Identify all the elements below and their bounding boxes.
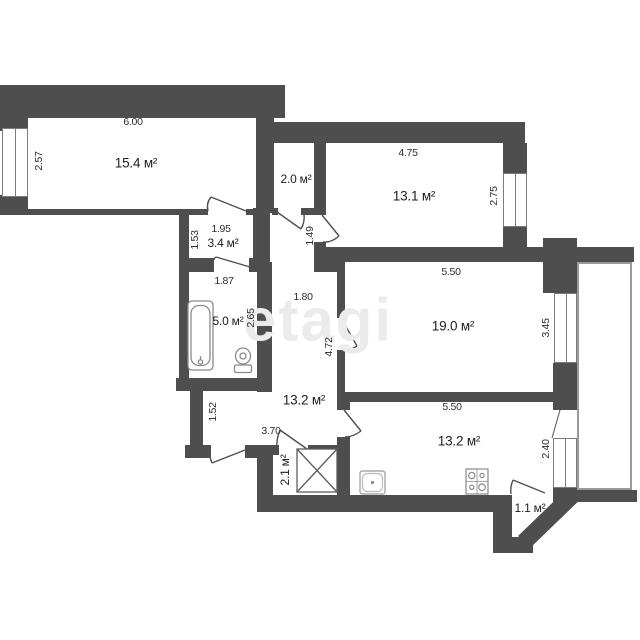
wall-reveal-line xyxy=(552,410,560,438)
wall xyxy=(0,85,285,118)
wall xyxy=(314,247,634,262)
sink-icon xyxy=(360,471,385,494)
wall xyxy=(503,226,527,248)
loggia-outline xyxy=(577,262,632,490)
wall xyxy=(553,363,577,410)
dim-label: 1.95 xyxy=(211,223,230,235)
wall xyxy=(274,122,525,143)
wall xyxy=(543,238,577,293)
wall xyxy=(185,445,211,458)
dim-label: 5.50 xyxy=(442,401,461,413)
room-label-bigroom: 19.0 м² xyxy=(432,319,474,334)
room-label-bedroom-right: 13.1 м² xyxy=(393,189,435,204)
wall xyxy=(0,209,208,215)
dim-label: 2.65 xyxy=(245,308,257,327)
wall xyxy=(272,208,278,215)
door-hall-kitchen xyxy=(344,410,361,437)
window-kitchen-right xyxy=(553,438,577,488)
wall xyxy=(337,350,345,392)
wall xyxy=(179,209,189,391)
dim-label: 3.70 xyxy=(261,425,280,437)
wall xyxy=(256,85,274,213)
door-hall-closet xyxy=(277,430,307,449)
window-living-left xyxy=(2,128,28,197)
dim-label: 1.87 xyxy=(214,275,233,287)
bathtub-icon xyxy=(188,301,213,370)
dim-label: 6.00 xyxy=(123,116,142,128)
dim-label: 4.75 xyxy=(398,147,417,159)
room-label-balcony-bottom: 1.1 м² xyxy=(514,501,545,515)
dim-label: 2.40 xyxy=(540,439,552,458)
wall xyxy=(190,391,203,451)
wall xyxy=(176,378,272,391)
wall xyxy=(0,85,28,131)
dim-label: 5.50 xyxy=(441,266,460,278)
wall xyxy=(337,437,350,497)
room-label-living: 15.4 м² xyxy=(115,156,157,171)
door-living-anteroom xyxy=(207,197,246,211)
wall xyxy=(257,452,273,497)
wall xyxy=(301,208,314,215)
door-hall-bedroom-right xyxy=(322,215,339,242)
dim-label: 4.72 xyxy=(323,337,335,356)
wall xyxy=(179,258,214,272)
room-label-anteroom: 3.4 м² xyxy=(207,236,238,250)
room-label-kitchen: 13.2 м² xyxy=(438,434,480,449)
window-bigroom-right xyxy=(554,293,577,363)
room-label-closet: 2.1 м² xyxy=(278,454,292,485)
watermark: etagi xyxy=(243,286,393,355)
dim-label: 1.52 xyxy=(207,402,219,421)
wall xyxy=(314,143,326,215)
door-entrance xyxy=(210,450,245,463)
wall xyxy=(257,495,512,512)
dim-label: 1.80 xyxy=(293,291,312,303)
dim-label: 3.45 xyxy=(540,318,552,337)
wall xyxy=(249,258,258,272)
room-label-bathroom: 5.0 м² xyxy=(212,314,243,328)
door-anteroom-bathroom xyxy=(213,257,250,267)
dim-label: 1.53 xyxy=(189,230,201,249)
room-label-balcony-top: 2.0 м² xyxy=(280,172,311,186)
room-label-hallway: 13.2 м² xyxy=(283,393,325,408)
wardrobe-icon xyxy=(297,449,337,492)
dim-label: 2.57 xyxy=(33,151,45,170)
stove-icon xyxy=(466,469,488,494)
dim-label: 2.75 xyxy=(488,186,500,205)
wall xyxy=(314,247,345,272)
door-kitchen-balcony-bottom xyxy=(511,480,545,494)
wall-diagonal xyxy=(518,483,584,548)
dim-label: 1.49 xyxy=(304,226,316,245)
window-bedroom-right xyxy=(503,173,527,227)
wall xyxy=(503,143,527,174)
floorplan: etagi 15.4 м² 2.0 м² 13.1 м² 3.4 м² 5.0 … xyxy=(0,0,640,640)
